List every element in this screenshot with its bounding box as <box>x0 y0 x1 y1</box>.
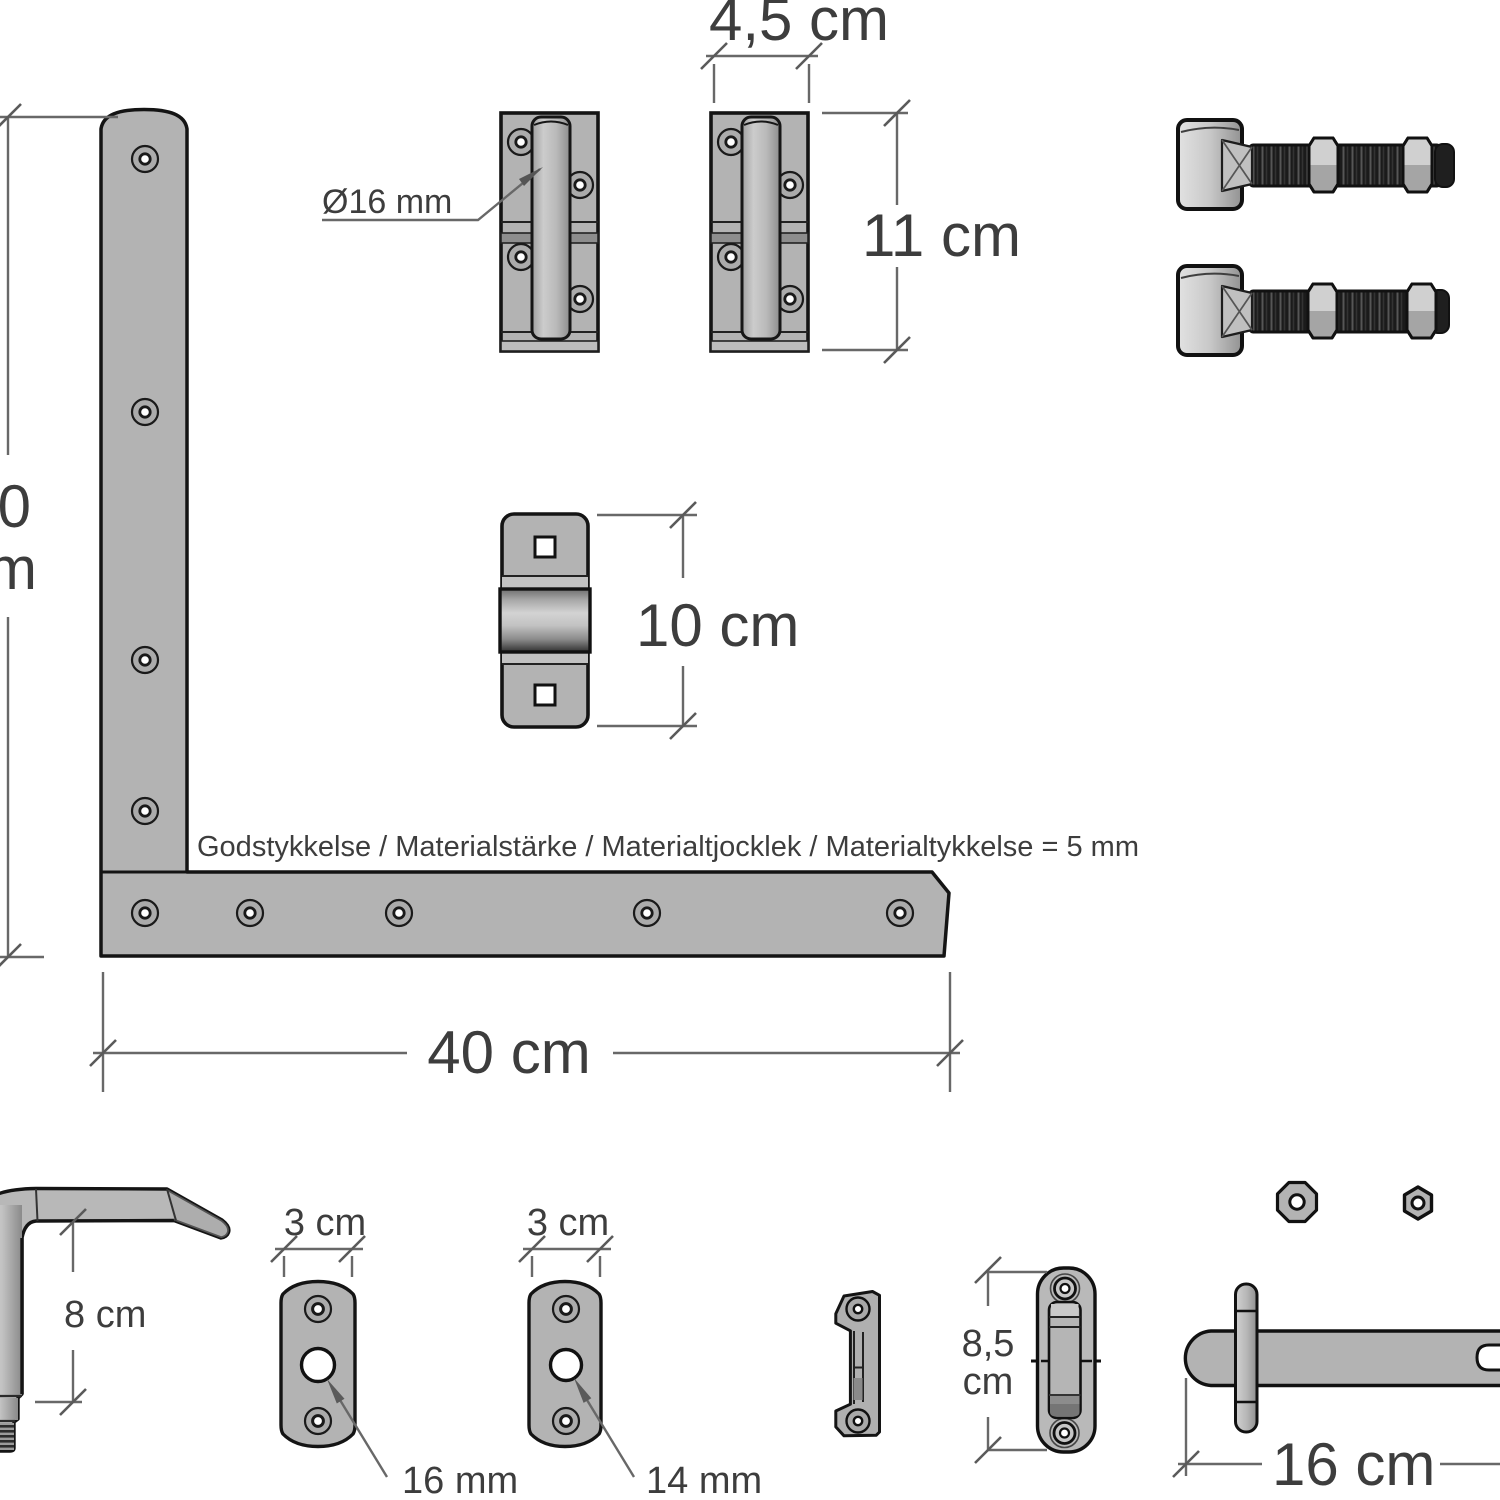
svg-text:Ø16 mm: Ø16 mm <box>322 183 452 221</box>
svg-text:Godstykkelse / Materialstärke: Godstykkelse / Materialstärke / Material… <box>197 831 1139 863</box>
svg-text:3 cm: 3 cm <box>527 1202 609 1244</box>
svg-text:11 cm: 11 cm <box>862 202 1021 269</box>
svg-text:40: 40 <box>0 473 31 540</box>
svg-text:16 mm: 16 mm <box>402 1460 518 1500</box>
svg-text:cm: cm <box>0 535 37 602</box>
svg-text:14 mm: 14 mm <box>646 1460 762 1500</box>
svg-text:cm: cm <box>963 1361 1014 1403</box>
svg-text:16 cm: 16 cm <box>1272 1431 1435 1498</box>
svg-text:10 cm: 10 cm <box>636 592 799 659</box>
svg-text:8,5: 8,5 <box>962 1323 1015 1365</box>
svg-text:8 cm: 8 cm <box>64 1294 146 1336</box>
svg-text:4,5 cm: 4,5 cm <box>709 0 889 53</box>
svg-text:40 cm: 40 cm <box>427 1019 590 1086</box>
